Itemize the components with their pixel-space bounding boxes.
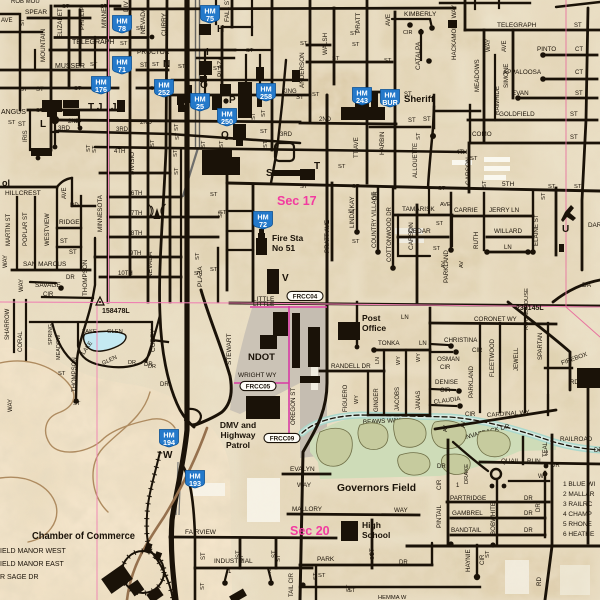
svg-text:AVE: AVE: [502, 40, 508, 52]
svg-text:DR: DR: [524, 528, 533, 534]
svg-text:CIR: CIR: [472, 348, 483, 354]
svg-text:CARRIE: CARRIE: [454, 207, 478, 214]
svg-text:SAVAGE: SAVAGE: [35, 282, 61, 289]
svg-text:LN: LN: [375, 357, 381, 364]
svg-text:SPARTAN: SPARTAN: [538, 333, 544, 360]
svg-text:176: 176: [95, 85, 107, 94]
svg-text:ST: ST: [332, 56, 340, 62]
svg-text:ELIZABET: ELIZABET: [57, 8, 64, 38]
svg-text:ST: ST: [485, 550, 491, 558]
svg-text:ST: ST: [20, 18, 26, 26]
svg-text:KIMBERLY: KIMBERLY: [404, 11, 437, 18]
svg-text:3RD: 3RD: [58, 126, 71, 132]
svg-text:High: High: [362, 520, 381, 530]
svg-text:ST: ST: [312, 92, 320, 98]
svg-text:TELEGRAPH: TELEGRAPH: [72, 39, 114, 46]
svg-text:No 51: No 51: [272, 243, 295, 253]
svg-text:EVALYN: EVALYN: [290, 466, 315, 473]
svg-text:INDUSTRIAL: INDUSTRIAL: [214, 558, 253, 565]
svg-text:SAN MARCUS: SAN MARCUS: [23, 261, 67, 268]
svg-text:ELAINE ST: ELAINE ST: [533, 214, 540, 246]
svg-text:ST: ST: [276, 554, 282, 562]
svg-text:S: S: [266, 168, 273, 179]
svg-text:4 CHAMP: 4 CHAMP: [563, 511, 592, 518]
svg-text:193: 193: [189, 479, 201, 488]
svg-text:PARTRIDGE: PARTRIDGE: [450, 495, 486, 502]
svg-text:ST: ST: [348, 209, 356, 215]
svg-text:GOLDFIELD: GOLDFIELD: [499, 111, 535, 118]
svg-text:ST: ST: [384, 58, 392, 64]
svg-text:ST: ST: [438, 186, 446, 192]
svg-text:QUAIL: QUAIL: [501, 458, 520, 465]
svg-text:HEMMA W: HEMMA W: [378, 595, 407, 600]
svg-text:FIGUERO: FIGUERO: [343, 384, 349, 412]
svg-text:3 RAILRC: 3 RAILRC: [563, 501, 593, 508]
svg-text:ANDERSON: ANDERSON: [299, 52, 306, 88]
svg-text:ST: ST: [201, 140, 207, 148]
svg-text:ST: ST: [300, 41, 308, 47]
svg-text:1 BLUE WI: 1 BLUE WI: [563, 481, 595, 488]
svg-text:OSMAN: OSMAN: [437, 356, 460, 363]
svg-text:FRCC04: FRCC04: [293, 293, 318, 300]
svg-text:NDOT: NDOT: [248, 352, 275, 363]
svg-text:ST: ST: [136, 26, 144, 32]
svg-text:LN: LN: [419, 341, 427, 347]
svg-text:SHARROW: SHARROW: [5, 308, 11, 340]
svg-text:GINGER: GINGER: [374, 388, 380, 412]
svg-text:Chamber of Commerce: Chamber of Commerce: [32, 530, 135, 542]
svg-text:BOBWHITE: BOBWHITE: [490, 502, 497, 535]
svg-text:H: H: [217, 24, 224, 35]
svg-text:Fire Sta: Fire Sta: [272, 233, 303, 243]
svg-text:JANAS: JANAS: [416, 391, 422, 410]
svg-text:ST: ST: [408, 118, 416, 124]
svg-text:ST: ST: [120, 41, 128, 47]
svg-text:AVE: AVE: [440, 202, 451, 208]
svg-text:FLEETWOOD: FLEETWOOD: [490, 338, 496, 377]
svg-text:COMO: COMO: [472, 131, 492, 138]
svg-text:ROB MOU: ROB MOU: [11, 0, 40, 5]
svg-text:U: U: [562, 224, 569, 235]
svg-text:FRCC09: FRCC09: [270, 435, 295, 442]
svg-text:CHRISTINA: CHRISTINA: [444, 337, 478, 344]
svg-text:DR: DR: [66, 275, 75, 281]
svg-text:RD: RD: [70, 203, 79, 209]
svg-text:R SAGE DR: R SAGE DR: [0, 574, 39, 581]
svg-text:DENISE: DENISE: [435, 379, 458, 386]
svg-text:TAMARISK: TAMARISK: [402, 206, 435, 213]
svg-text:ST: ST: [174, 123, 180, 131]
svg-text:TT AVE: TT AVE: [353, 137, 360, 158]
svg-text:CIR: CIR: [403, 30, 413, 36]
svg-text:ol: ol: [2, 178, 10, 188]
svg-text:ST: ST: [352, 42, 360, 48]
svg-text:V: V: [282, 273, 289, 284]
svg-text:4TH: 4TH: [456, 150, 467, 156]
svg-text:DR: DR: [524, 496, 533, 502]
svg-text:2 MALLAR: 2 MALLAR: [563, 491, 595, 498]
svg-text:ST: ST: [74, 86, 82, 92]
svg-text:DR: DR: [536, 503, 542, 512]
svg-text:JACOBS: JACOBS: [395, 387, 401, 411]
svg-text:AV: AV: [459, 261, 465, 268]
svg-text:ST: ST: [150, 139, 156, 147]
svg-text:RUN: RUN: [527, 458, 541, 465]
svg-text:ST: ST: [60, 239, 68, 245]
svg-text:DR: DR: [399, 560, 408, 566]
svg-text:ST: ST: [574, 23, 582, 29]
svg-text:Q: Q: [221, 130, 229, 141]
svg-text:PHILLIP: PHILLIP: [79, 7, 86, 30]
svg-text:ST: ST: [318, 573, 326, 579]
svg-text:BANDTAIL: BANDTAIL: [451, 527, 482, 534]
svg-text:ST: ST: [346, 584, 352, 592]
svg-text:DR: DR: [373, 191, 379, 200]
svg-text:71: 71: [118, 65, 126, 74]
svg-text:MOUNTAIN: MOUNTAIN: [40, 28, 47, 62]
svg-text:PARK: PARK: [317, 556, 335, 563]
svg-text:CT: CT: [575, 70, 583, 76]
svg-text:252: 252: [158, 88, 170, 97]
svg-text:CORAL: CORAL: [18, 331, 24, 352]
svg-text:CIR: CIR: [440, 388, 451, 394]
svg-text:ST: ST: [8, 120, 16, 126]
svg-text:158478L: 158478L: [102, 308, 130, 315]
svg-text:RUTH: RUTH: [473, 232, 480, 249]
svg-text:Patrol: Patrol: [226, 440, 250, 450]
svg-text:ST: ST: [251, 112, 257, 120]
svg-text:GLEN: GLEN: [107, 329, 123, 335]
svg-text:3RD: 3RD: [116, 127, 129, 133]
svg-text:ST: ST: [261, 109, 267, 117]
svg-text:PROCTOR: PROCTOR: [137, 49, 170, 56]
svg-text:ST: ST: [90, 62, 98, 68]
svg-text:78: 78: [118, 24, 126, 33]
svg-text:10TH: 10TH: [118, 271, 133, 277]
svg-text:ST: ST: [239, 554, 245, 562]
svg-text:ST: ST: [541, 192, 547, 200]
svg-text:CIR: CIR: [437, 479, 443, 490]
svg-text:WY: WY: [538, 474, 548, 480]
svg-text:ST: ST: [423, 117, 431, 123]
svg-text:ST: ST: [548, 184, 556, 190]
svg-text:AV: AV: [441, 261, 447, 268]
svg-text:ST: ST: [575, 91, 583, 97]
svg-text:4TH: 4TH: [114, 149, 125, 155]
svg-text:MEADOWS: MEADOWS: [474, 59, 481, 92]
svg-text:6 HEATHE: 6 HEATHE: [563, 531, 595, 538]
svg-text:5TH: 5TH: [502, 181, 515, 188]
svg-text:ST: ST: [213, 66, 221, 72]
svg-text:ST: ST: [574, 184, 582, 190]
svg-text:ST: ST: [246, 48, 254, 54]
svg-text:ST: ST: [570, 112, 578, 118]
svg-text:258: 258: [260, 92, 272, 101]
svg-text:ST: ST: [470, 156, 478, 162]
svg-text:ST: ST: [58, 371, 66, 377]
svg-text:Post: Post: [362, 313, 381, 323]
svg-text:JERRY LN: JERRY LN: [489, 207, 520, 214]
svg-text:ST: ST: [73, 401, 81, 407]
svg-text:75: 75: [206, 14, 214, 23]
svg-text:RIDGE: RIDGE: [59, 219, 80, 226]
svg-text:WY: WY: [507, 317, 517, 323]
svg-text:WY: WY: [354, 395, 360, 404]
svg-text:3RD: 3RD: [280, 132, 293, 138]
svg-text:ST: ST: [352, 184, 360, 190]
svg-text:230145L: 230145L: [516, 305, 544, 312]
svg-text:ST: ST: [200, 582, 206, 590]
svg-text:Sec 17: Sec 17: [277, 194, 317, 208]
svg-text:TELEGRAPH: TELEGRAPH: [497, 22, 537, 29]
svg-text:DR: DR: [148, 364, 156, 370]
svg-text:ST: ST: [36, 87, 44, 93]
svg-text:LAKE: LAKE: [82, 329, 97, 335]
svg-text:ST: ST: [69, 250, 77, 256]
svg-text:5 RHONE: 5 RHONE: [563, 521, 593, 528]
svg-text:AV: AV: [461, 421, 467, 428]
svg-text:DMV and: DMV and: [220, 420, 256, 430]
svg-text:WRIGHT WY: WRIGHT WY: [238, 372, 277, 379]
svg-text:ST: ST: [338, 164, 346, 170]
svg-text:TAIL CIR: TAIL CIR: [289, 572, 295, 597]
svg-text:ST: ST: [195, 252, 201, 260]
svg-text:72: 72: [259, 220, 267, 229]
svg-text:DR: DR: [594, 448, 600, 454]
svg-text:MARTIN ST: MARTIN ST: [6, 213, 12, 246]
svg-text:WILLARD: WILLARD: [494, 228, 522, 235]
svg-text:SIMONE: SIMONE: [503, 64, 510, 88]
svg-text:DA: DA: [582, 282, 592, 289]
svg-text:ST: ST: [194, 271, 202, 277]
svg-text:AVE: AVE: [62, 187, 68, 199]
svg-text:N: N: [163, 59, 170, 70]
svg-text:ST: ST: [210, 267, 218, 273]
svg-text:WESTVIEW: WESTVIEW: [45, 213, 51, 246]
svg-text:KING: KING: [282, 89, 297, 95]
svg-text:ST: ST: [175, 132, 181, 140]
svg-text:WAY: WAY: [19, 279, 25, 292]
svg-text:BUR: BUR: [382, 98, 398, 107]
svg-text:OREGON ST: OREGON ST: [290, 388, 297, 425]
svg-text:WALSH: WALSH: [322, 32, 329, 55]
svg-text:DAR: DAR: [588, 222, 600, 229]
svg-text:DIV: DIV: [123, 1, 130, 13]
svg-text:THOMPSON: THOMPSON: [82, 259, 89, 296]
svg-text:ST: ST: [352, 239, 360, 245]
svg-text:ST: ST: [218, 210, 224, 218]
svg-text:Office: Office: [362, 323, 386, 333]
svg-text:ST: ST: [100, 4, 108, 10]
svg-text:DR: DR: [128, 360, 136, 366]
svg-text:CT: CT: [575, 47, 583, 53]
svg-text:THOMPSON: THOMPSON: [72, 357, 78, 392]
svg-text:PRATT: PRATT: [355, 13, 362, 33]
svg-text:9TH: 9TH: [130, 251, 141, 257]
svg-text:WAY: WAY: [394, 507, 408, 514]
svg-text:ST: ST: [296, 95, 304, 101]
svg-text:ST: ST: [180, 108, 188, 114]
svg-text:7TH: 7TH: [131, 211, 142, 217]
svg-text:HILLCREST: HILLCREST: [5, 190, 41, 197]
svg-text:CARSON: CARSON: [408, 222, 415, 250]
svg-text:HAYNIE: HAYNIE: [465, 549, 472, 572]
svg-text:STEWART: STEWART: [226, 334, 233, 365]
svg-text:TEAL: TEAL: [543, 441, 549, 457]
svg-text:O: O: [200, 80, 208, 91]
svg-text:PARKLAND: PARKLAND: [469, 365, 475, 398]
svg-text:ST: ST: [260, 129, 268, 135]
svg-text:POPLAR ST: POPLAR ST: [23, 212, 29, 246]
svg-text:ST: ST: [350, 31, 358, 37]
svg-text:ST: ST: [416, 132, 422, 140]
svg-text:MEADOW: MEADOW: [56, 334, 62, 360]
svg-text:PINTO: PINTO: [537, 46, 556, 53]
svg-text:L: L: [40, 119, 46, 130]
svg-text:ST: ST: [482, 180, 488, 188]
svg-text:WAY: WAY: [8, 399, 14, 412]
svg-text:GAMBREL: GAMBREL: [452, 510, 483, 517]
svg-text:FALL ST: FALL ST: [224, 0, 231, 22]
svg-text:2ND: 2ND: [319, 117, 332, 123]
svg-text:AVE: AVE: [385, 14, 392, 26]
svg-text:ST: ST: [92, 145, 98, 153]
svg-text:ST: ST: [20, 87, 28, 93]
svg-text:25: 25: [196, 102, 204, 111]
svg-text:ST: ST: [201, 552, 207, 560]
svg-text:ST: ST: [370, 552, 376, 560]
svg-text:250: 250: [221, 117, 233, 126]
svg-text:DR: DR: [524, 511, 533, 517]
svg-text:HACKAMORE WAY: HACKAMORE WAY: [451, 5, 458, 60]
svg-text:MINNESOTA: MINNESOTA: [97, 194, 104, 232]
svg-text:DR: DR: [160, 382, 169, 388]
svg-text:W: W: [163, 450, 173, 461]
svg-text:DR: DR: [437, 464, 446, 470]
svg-text:ST: ST: [174, 167, 180, 175]
svg-text:JEWELL: JEWELL: [514, 347, 520, 371]
svg-text:8TH: 8TH: [131, 231, 142, 237]
svg-text:243: 243: [356, 96, 368, 105]
svg-text:2ND: 2ND: [68, 119, 81, 125]
svg-text:RAWHIDE: RAWHIDE: [494, 86, 501, 115]
svg-text:I: I: [206, 47, 209, 58]
svg-text:WAY: WAY: [486, 39, 492, 52]
svg-text:6TH: 6TH: [131, 191, 142, 197]
svg-text:ST: ST: [18, 122, 26, 128]
svg-text:ST: ST: [62, 4, 70, 10]
svg-text:CIR: CIR: [465, 412, 476, 418]
svg-text:AV: AV: [443, 425, 449, 432]
svg-text:PRATT AVE: PRATT AVE: [324, 220, 331, 253]
svg-text:IELD MANOR WEST: IELD MANOR WEST: [0, 548, 66, 555]
svg-text:RANDELL DR: RANDELL DR: [331, 363, 371, 370]
svg-text:R: R: [233, 158, 241, 169]
svg-text:ST: ST: [219, 140, 225, 148]
svg-text:WY: WY: [416, 353, 422, 362]
svg-text:ST: ST: [210, 192, 218, 198]
svg-text:LN: LN: [504, 245, 512, 251]
svg-text:HARBIN: HARBIN: [379, 132, 386, 155]
svg-text:CURRY: CURRY: [150, 328, 157, 352]
svg-text:CURRY: CURRY: [161, 12, 168, 36]
svg-text:Governors Field: Governors Field: [337, 482, 416, 494]
svg-text:ST: ST: [436, 221, 444, 227]
svg-text:CORONET: CORONET: [474, 316, 506, 323]
svg-text:WAY: WAY: [3, 255, 9, 268]
svg-text:ANGUS: ANGUS: [1, 109, 26, 116]
svg-text:T: T: [314, 161, 320, 172]
svg-text:P: P: [229, 95, 236, 106]
svg-text:FRCC05: FRCC05: [246, 383, 271, 390]
svg-text:CIR: CIR: [43, 292, 54, 298]
svg-text:ST: ST: [178, 64, 186, 70]
svg-text:ST: ST: [173, 149, 179, 157]
svg-text:SPEAR: SPEAR: [25, 9, 47, 16]
svg-text:LITTLE: LITTLE: [253, 301, 275, 308]
svg-text:Highway: Highway: [221, 430, 256, 440]
svg-text:J: J: [111, 102, 117, 113]
svg-text:T J: T J: [88, 102, 102, 113]
svg-text:Sec 20: Sec 20: [290, 524, 330, 538]
svg-text:RD: RD: [570, 380, 579, 386]
svg-text:DR: DR: [551, 463, 560, 469]
svg-text:MALLORY: MALLORY: [292, 506, 323, 513]
svg-text:ST: ST: [263, 140, 269, 148]
svg-text:TONKA: TONKA: [378, 340, 400, 347]
svg-text:LN: LN: [401, 315, 409, 321]
svg-text:NEVADA: NEVADA: [147, 251, 154, 278]
svg-text:ROUNDHOUSE: ROUNDHOUSE: [524, 288, 530, 330]
svg-text:EVAN: EVAN: [512, 90, 529, 97]
svg-text:DRAKE: DRAKE: [464, 464, 470, 484]
svg-text:ST: ST: [570, 135, 578, 141]
svg-text:WAY: WAY: [297, 482, 312, 489]
svg-text:194: 194: [163, 438, 175, 447]
svg-text:PINTAIL: PINTAIL: [436, 505, 443, 528]
svg-text:IRIS: IRIS: [23, 130, 29, 142]
svg-text:ST: ST: [433, 246, 441, 252]
svg-text:School: School: [362, 530, 390, 540]
svg-text:RD: RD: [536, 577, 543, 586]
svg-text:COTTONWOOD DR: COTTONWOOD DR: [387, 206, 393, 262]
svg-text:ST: ST: [300, 184, 308, 190]
svg-text:WY: WY: [396, 356, 402, 365]
svg-text:M: M: [183, 95, 191, 106]
svg-text:AVE: AVE: [1, 18, 13, 24]
svg-text:ST: ST: [36, 108, 44, 114]
svg-text:CATALPA: CATALPA: [415, 41, 422, 70]
svg-text:ALLOUETTE: ALLOUETTE: [413, 143, 419, 178]
svg-text:SPRING: SPRING: [48, 324, 54, 345]
svg-text:DIVISIO: DIVISIO: [129, 152, 136, 175]
svg-text:FAIRVIEW: FAIRVIEW: [185, 529, 217, 536]
svg-text:MUSSER: MUSSER: [55, 63, 85, 70]
svg-text:CIR: CIR: [440, 365, 451, 371]
svg-text:ST: ST: [140, 63, 148, 69]
svg-text:ST: ST: [152, 62, 160, 68]
svg-text:IELD MANOR EAST: IELD MANOR EAST: [0, 561, 65, 568]
svg-text:2ND: 2ND: [140, 120, 153, 126]
svg-text:Sheriff: Sheriff: [404, 94, 435, 105]
